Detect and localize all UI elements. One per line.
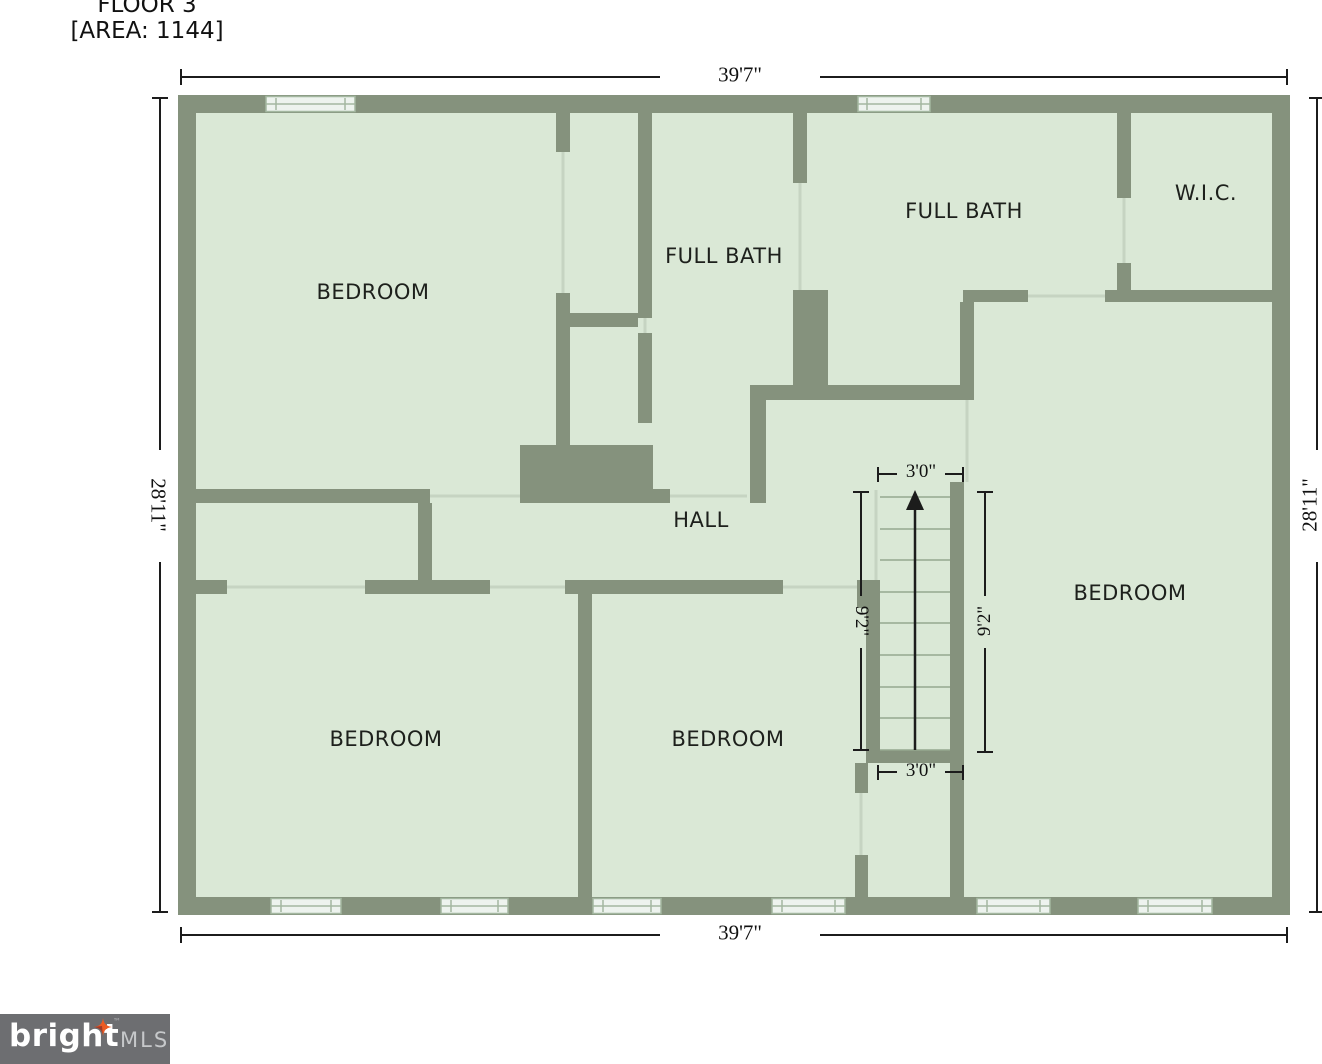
- window: [858, 97, 930, 112]
- logo-star-icon: [93, 1017, 113, 1037]
- window: [441, 899, 508, 914]
- dimension-label-stairs-top: 3'0": [906, 461, 936, 483]
- room-label-bedroom-bottom-center: BEDROOM: [671, 727, 784, 751]
- window: [593, 899, 661, 914]
- logo-suffix-text: MLS: [120, 1028, 169, 1052]
- window: [977, 899, 1050, 914]
- dimension-label-stairs-bottom: 3'0": [906, 760, 936, 782]
- dimension-label-stairs-right: 9'2": [974, 606, 996, 636]
- dimension-label-left-height: 28'11": [146, 478, 171, 532]
- window: [271, 899, 341, 914]
- room-label-bedroom-top-left: BEDROOM: [316, 280, 429, 304]
- window: [1138, 899, 1212, 914]
- plan-title-area: [AREA: 1144]: [62, 18, 232, 44]
- dimension-label-stairs-left: 9'2": [850, 606, 872, 636]
- dimension-label-right-height: 28'11": [1298, 478, 1322, 532]
- room-label-hall: HALL: [673, 508, 729, 532]
- dimension-label-top-width: 39'7": [718, 63, 762, 88]
- plan-title-floor: FLOOR 3: [62, 0, 232, 18]
- room-label-bedroom-right: BEDROOM: [1073, 581, 1186, 605]
- room-label-full-bath-right: FULL BATH: [905, 199, 1023, 223]
- window: [266, 97, 355, 112]
- room-label-wic: W.I.C.: [1175, 181, 1237, 205]
- floorplan-canvas: FLOOR 3 [AREA: 1144] BEDROOM FULL BATH F…: [0, 0, 1322, 1064]
- plan-title: FLOOR 3 [AREA: 1144]: [62, 0, 232, 44]
- room-label-full-bath-center: FULL BATH: [665, 244, 783, 268]
- brightmls-logo: bright ™ MLS: [0, 1014, 170, 1064]
- floorplan-drawing: [0, 0, 1322, 1064]
- logo-trademark: ™: [113, 1017, 121, 1026]
- room-label-bedroom-bottom-left: BEDROOM: [329, 727, 442, 751]
- dimension-label-bottom-width: 39'7": [718, 921, 762, 946]
- window: [772, 899, 845, 914]
